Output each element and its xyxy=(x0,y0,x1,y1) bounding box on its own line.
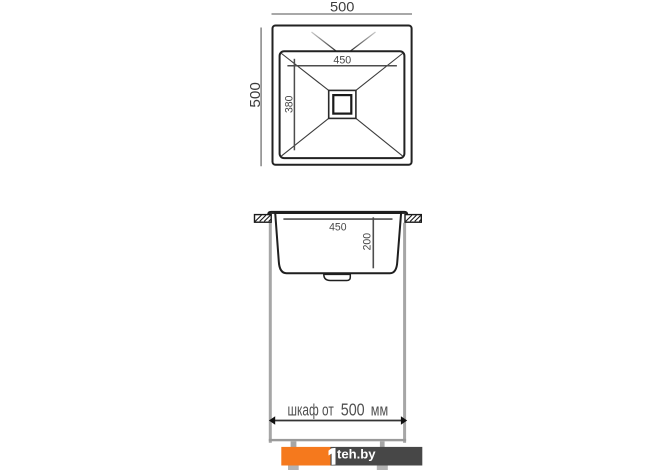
svg-text:450: 450 xyxy=(329,221,346,233)
svg-text:мм: мм xyxy=(371,401,388,419)
svg-text:500: 500 xyxy=(330,0,355,15)
svg-text:200: 200 xyxy=(361,233,373,250)
svg-text:teh.by: teh.by xyxy=(337,446,376,461)
svg-text:380: 380 xyxy=(283,96,295,113)
svg-text:шкаф от: шкаф от xyxy=(288,401,335,419)
svg-text:500: 500 xyxy=(341,399,365,419)
svg-text:450: 450 xyxy=(333,54,351,66)
svg-text:500: 500 xyxy=(247,82,264,108)
